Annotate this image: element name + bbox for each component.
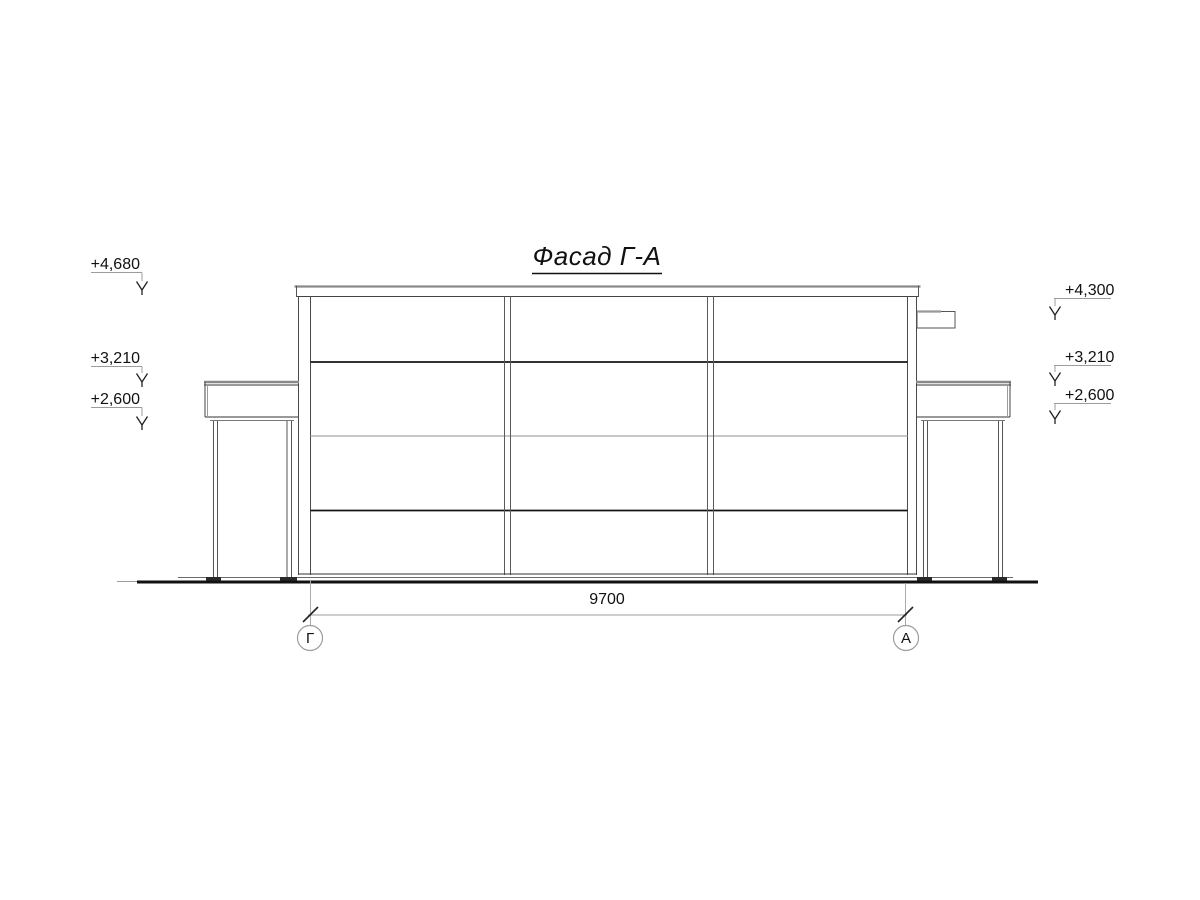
elevation-label: +3,210 bbox=[91, 350, 140, 367]
elevation-label: +4,680 bbox=[91, 256, 140, 273]
elevation-label: +2,600 bbox=[91, 391, 140, 408]
sheet-background bbox=[0, 0, 1200, 900]
ground-line bbox=[117, 582, 1038, 583]
facade-elevation-drawing: Фасад Г-А bbox=[0, 0, 1200, 900]
axis-letter: А bbox=[901, 630, 911, 647]
elevation-label: +3,210 bbox=[1065, 349, 1114, 366]
axis-marker-a: А bbox=[894, 626, 919, 651]
roof-vent-box bbox=[917, 312, 955, 329]
roof-vent bbox=[917, 312, 955, 329]
drawing-title-text: Фасад Г-А bbox=[533, 241, 662, 271]
dimension-value: 9700 bbox=[589, 591, 625, 608]
elevation-label: +4,300 bbox=[1065, 282, 1114, 299]
drawing-title: Фасад Г-А bbox=[532, 241, 662, 274]
facade-drawing-sheet: Фасад Г-А bbox=[0, 0, 1200, 900]
elevation-label: +2,600 bbox=[1065, 387, 1114, 404]
axis-marker-g: Г bbox=[298, 626, 323, 651]
parapet-band bbox=[295, 286, 921, 298]
axis-letter: Г bbox=[306, 630, 314, 647]
